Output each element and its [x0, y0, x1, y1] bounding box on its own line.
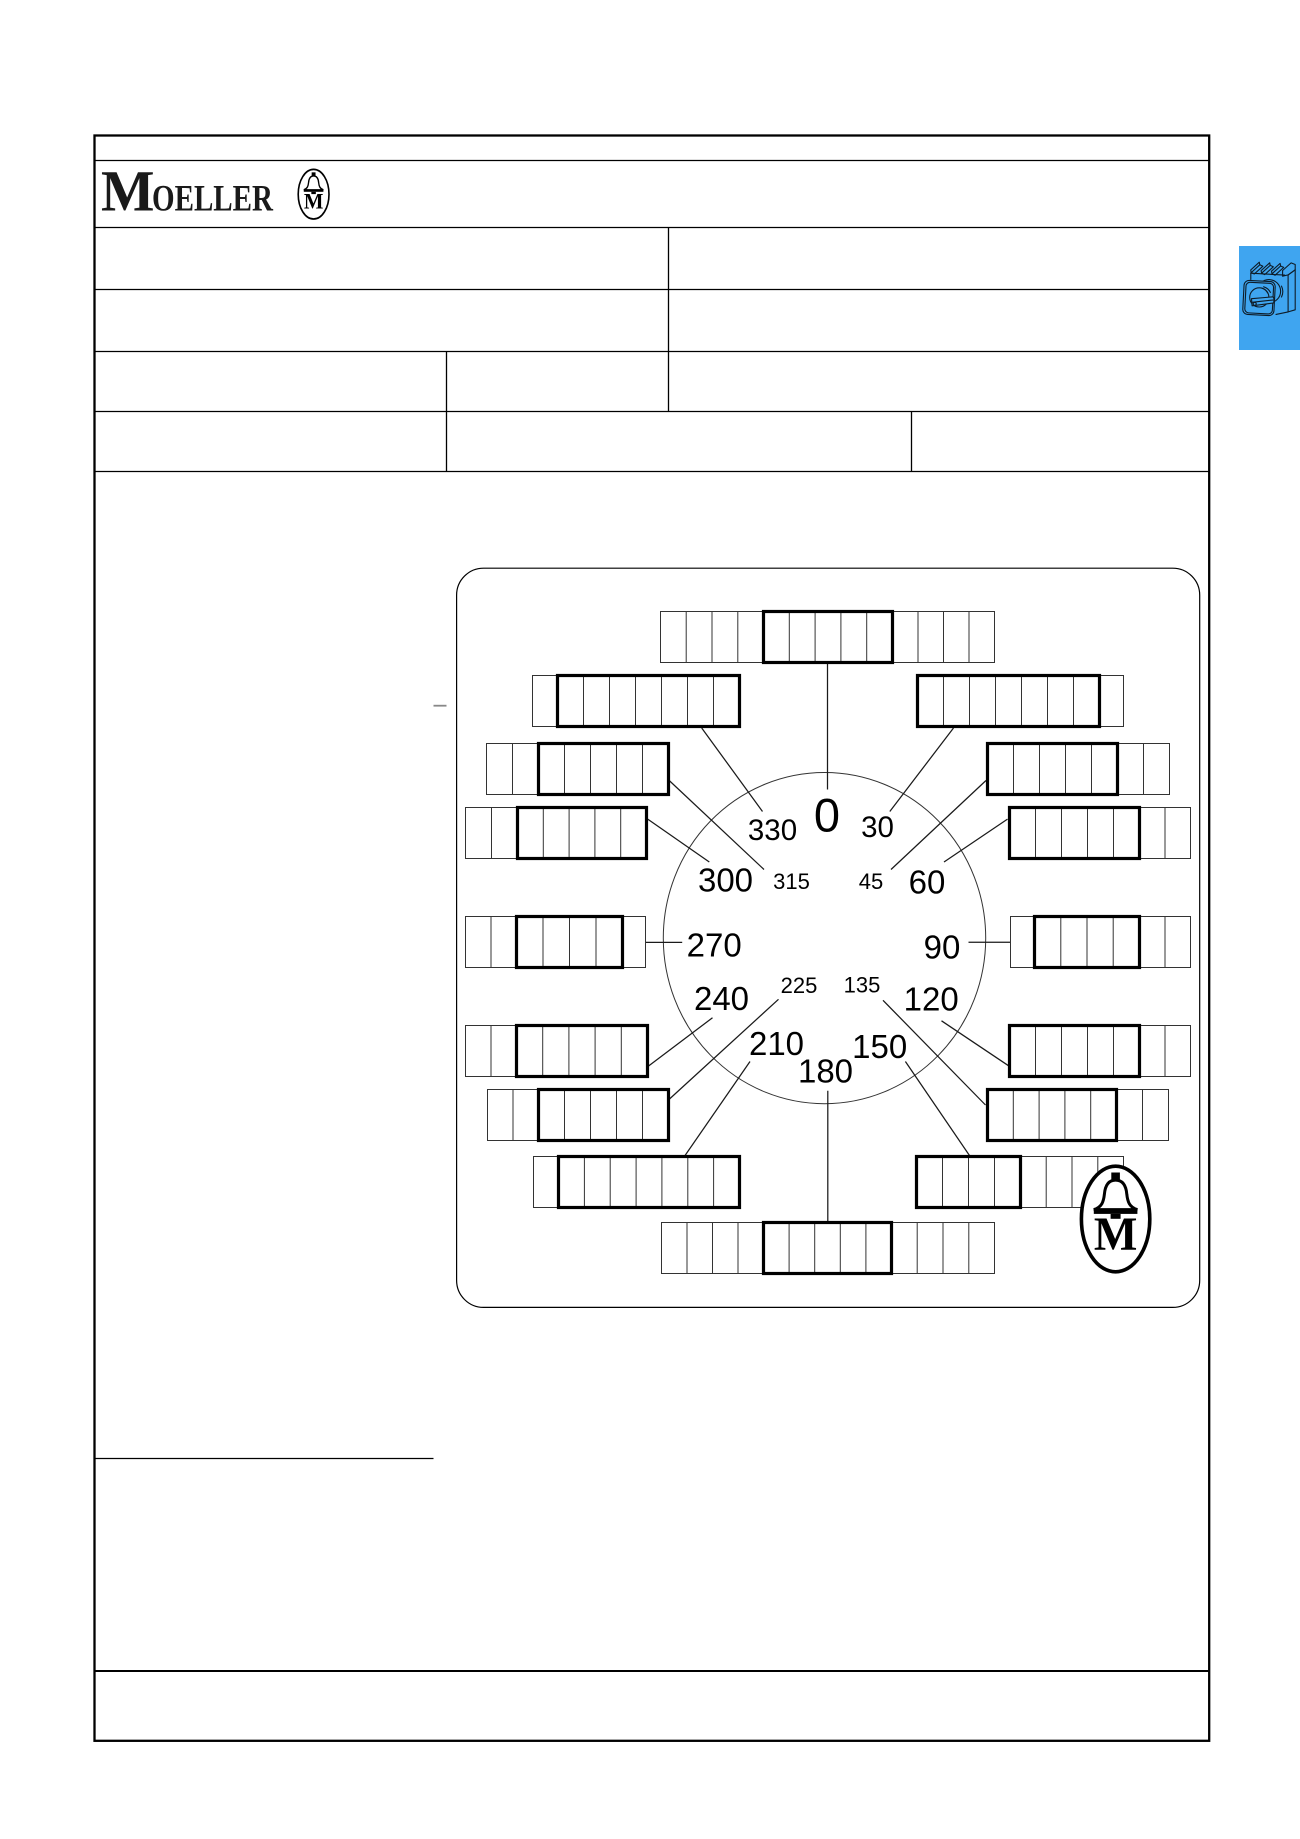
svg-text:0: 0 — [814, 789, 840, 842]
svg-text:90: 90 — [924, 929, 961, 966]
svg-text:60: 60 — [909, 864, 946, 901]
svg-text:330: 330 — [748, 814, 797, 847]
svg-text:OELLER: OELLER — [152, 179, 274, 220]
svg-text:210: 210 — [749, 1025, 804, 1062]
svg-text:135: 135 — [844, 973, 881, 998]
svg-text:180: 180 — [798, 1053, 853, 1090]
svg-text:315: 315 — [773, 869, 810, 894]
svg-text:30: 30 — [861, 811, 894, 844]
svg-text:240: 240 — [694, 980, 749, 1017]
svg-text:M: M — [304, 188, 324, 214]
svg-text:45: 45 — [859, 869, 883, 894]
svg-text:225: 225 — [781, 973, 818, 998]
svg-text:150: 150 — [852, 1028, 907, 1065]
svg-text:270: 270 — [687, 926, 742, 963]
svg-text:300: 300 — [698, 862, 753, 899]
svg-text:120: 120 — [904, 981, 959, 1018]
svg-text:M: M — [101, 159, 155, 224]
svg-text:M: M — [1094, 1208, 1138, 1261]
